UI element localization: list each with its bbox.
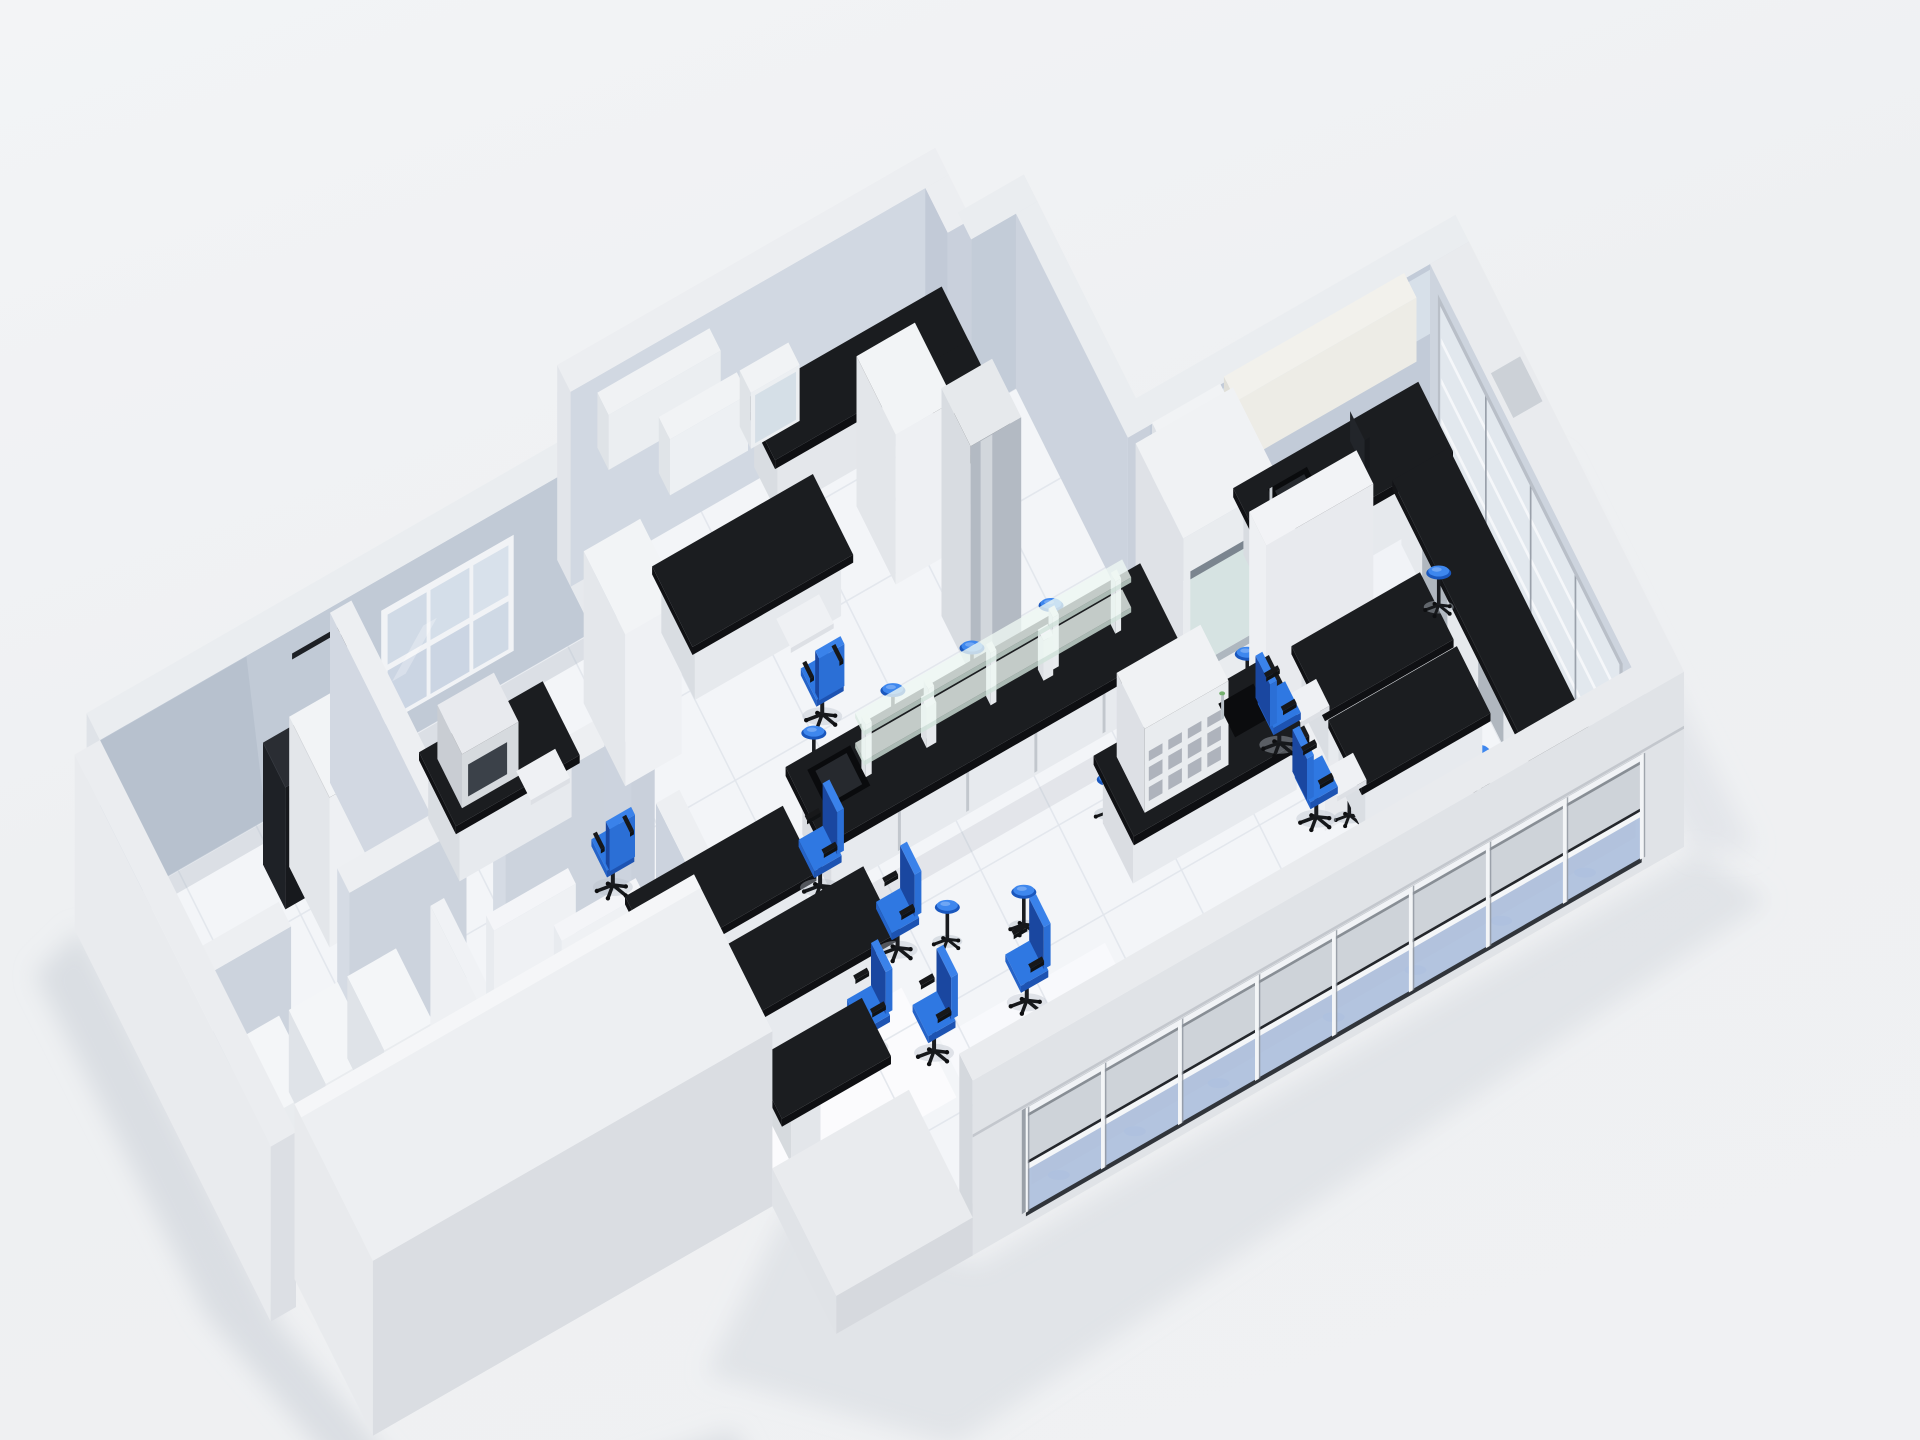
chair-caster (833, 713, 837, 717)
chair-backrest-west (815, 651, 819, 701)
stool-caster (932, 942, 936, 946)
chair-caster (1038, 1000, 1042, 1004)
stool-caster (1094, 815, 1098, 819)
stool-caster (1433, 614, 1437, 618)
chair-caster (1309, 828, 1313, 832)
mullion (1486, 842, 1490, 948)
chair-caster (624, 884, 628, 888)
stool-caster (1448, 612, 1452, 616)
chair-caster (890, 959, 894, 963)
chair-caster (945, 1050, 949, 1054)
chair-caster (927, 1062, 931, 1066)
mullion-shadow (1105, 1062, 1107, 1167)
mullion-shadow (1182, 1018, 1184, 1123)
chair-caster (1272, 754, 1276, 758)
chair-caster (1009, 1004, 1013, 1008)
stool-caster (1448, 604, 1452, 608)
chair-caster (833, 723, 837, 727)
stool-seat-highlight (940, 902, 950, 906)
mullion (1332, 931, 1336, 1037)
mullion-shadow (1028, 1107, 1030, 1212)
stool-seat-highlight (807, 727, 817, 731)
stool-seat-highlight (1017, 887, 1027, 891)
mullion (1563, 798, 1567, 904)
glass-jamb (1022, 1108, 1026, 1214)
mullion-shadow (1413, 885, 1415, 990)
mullion (1101, 1063, 1105, 1169)
stool-seat-highlight (886, 685, 896, 689)
chair-caster (595, 889, 599, 893)
chair-caster (1327, 825, 1331, 829)
chair-backrest-south (1307, 755, 1314, 801)
monitor-south (1365, 437, 1370, 470)
wall-bump-north-west (557, 365, 570, 587)
stool-seat-highlight (1432, 567, 1442, 571)
chair-backrest-south (1270, 681, 1277, 727)
mullion (1640, 754, 1644, 860)
render-stage (0, 0, 1920, 1440)
wall-west-south (271, 1132, 296, 1322)
chair-backrest-west (606, 822, 610, 872)
mullion (1178, 1019, 1182, 1125)
stool-caster (956, 939, 960, 943)
chair-caster (606, 896, 610, 900)
mullion-shadow (1259, 974, 1260, 1079)
chair-caster (804, 718, 808, 722)
chair-backrest-south (1044, 923, 1051, 969)
chair-caster (908, 956, 912, 960)
faucet (1221, 694, 1224, 720)
chair-caster (802, 889, 806, 893)
mullion-shadow (1490, 841, 1492, 946)
chair-backrest-south (915, 871, 922, 917)
chair-caster (908, 947, 912, 951)
chair-caster (1327, 816, 1331, 820)
stool-seat-highlight (1240, 649, 1250, 653)
mullion-shadow (1567, 797, 1568, 902)
lab-isometric-render (0, 0, 1920, 1440)
mullion (1255, 975, 1259, 1081)
stool-caster (1423, 608, 1427, 612)
stool-caster (1343, 824, 1347, 828)
mullion-shadow (1644, 753, 1645, 858)
faucet-head (1219, 691, 1225, 695)
chair-caster (1298, 820, 1302, 824)
chair-caster (945, 1059, 949, 1063)
chair-backrest-south (886, 968, 893, 1014)
chair-backrest-south (951, 974, 958, 1020)
mullion-shadow (1336, 930, 1337, 1035)
column-highlight (981, 434, 993, 669)
chair-caster (1261, 747, 1265, 751)
stool-caster (956, 946, 960, 950)
chair-caster (1020, 1011, 1024, 1015)
chair-backrest-south (837, 809, 844, 855)
mullion (1409, 886, 1413, 992)
chair-caster (916, 1055, 920, 1059)
